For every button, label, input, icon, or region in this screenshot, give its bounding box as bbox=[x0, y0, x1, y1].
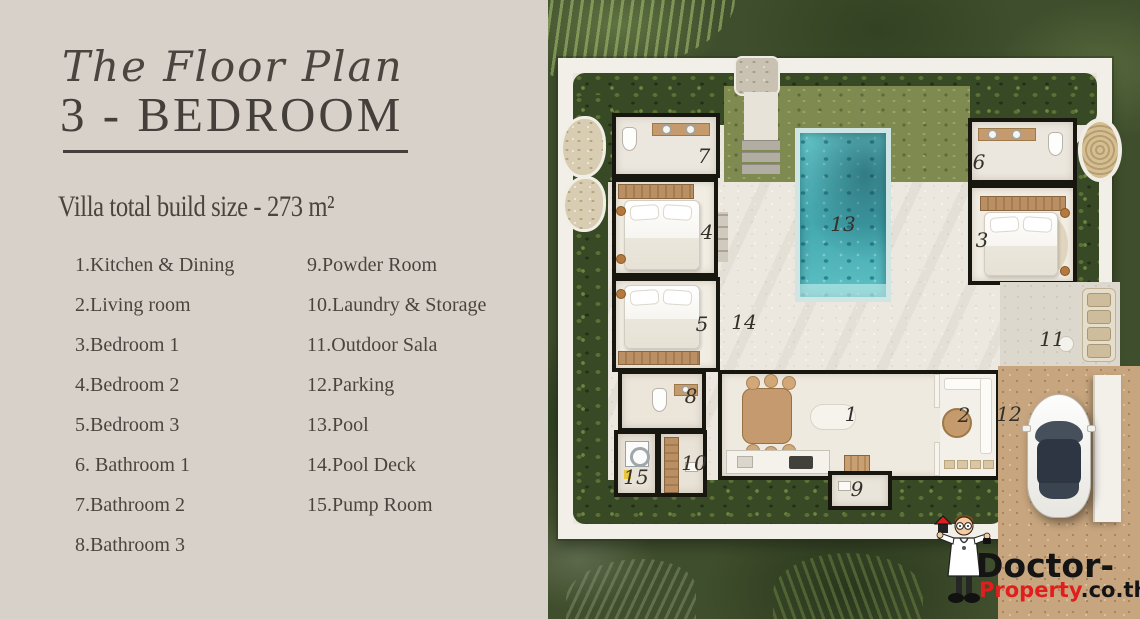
vanity bbox=[652, 123, 710, 136]
room-label-15: 15 bbox=[623, 465, 648, 489]
cushion bbox=[970, 460, 981, 469]
room-label-2: 2 bbox=[958, 403, 971, 427]
toilet bbox=[652, 388, 667, 412]
car-roof-glass bbox=[1037, 439, 1081, 487]
pampas-planter bbox=[562, 176, 606, 232]
watermark-line2: Property.co.th bbox=[979, 578, 1140, 602]
side-pot bbox=[1060, 266, 1070, 276]
page-title: 3 - BEDROOM bbox=[60, 86, 403, 143]
partition-shelf bbox=[934, 374, 940, 408]
foot-deck bbox=[618, 351, 700, 365]
legend-item-3: 3.Bedroom 1 bbox=[75, 334, 234, 354]
room-label-6: 6 bbox=[973, 150, 986, 174]
pampas-planter bbox=[560, 116, 606, 178]
bed bbox=[624, 200, 700, 270]
hanging-basket-chair bbox=[1078, 118, 1122, 182]
car bbox=[1027, 394, 1091, 518]
info-panel: The Floor Plan 3 - BEDROOM Villa total b… bbox=[0, 0, 548, 619]
room-label-1: 1 bbox=[845, 402, 858, 426]
storage-counter bbox=[664, 437, 679, 493]
gate-wall bbox=[1093, 375, 1121, 522]
cushion bbox=[957, 460, 968, 469]
room-label-13: 13 bbox=[830, 212, 855, 236]
bed bbox=[624, 285, 700, 349]
watermark: Doctor- Property.co.th bbox=[934, 514, 1140, 619]
legend-item-9: 9.Powder Room bbox=[307, 254, 486, 274]
cooktop bbox=[789, 456, 813, 469]
legend-item-6: 6. Bathroom 1 bbox=[75, 454, 234, 474]
side-pot bbox=[616, 254, 626, 264]
legend-item-11: 11.Outdoor Sala bbox=[307, 334, 486, 354]
room-label-12: 12 bbox=[996, 402, 1021, 426]
door-mat bbox=[844, 455, 870, 472]
room-label-10: 10 bbox=[681, 451, 706, 475]
kitchen-sink bbox=[737, 456, 753, 468]
chair bbox=[764, 374, 778, 388]
legend-item-10: 10.Laundry & Storage bbox=[307, 294, 486, 314]
build-size-subtitle: Villa total build size - 273 m² bbox=[58, 190, 334, 224]
kitchen-counter bbox=[726, 450, 830, 474]
entry-steps bbox=[742, 140, 780, 182]
sala-bench bbox=[1082, 288, 1116, 362]
powder-basin bbox=[838, 481, 851, 491]
toilet bbox=[622, 127, 637, 151]
watermark-brand: Property bbox=[979, 578, 1081, 602]
legend-item-13: 13.Pool bbox=[307, 414, 486, 434]
headboard bbox=[618, 184, 694, 199]
outdoor-sala bbox=[1000, 282, 1120, 370]
divider-line bbox=[63, 150, 408, 153]
side-pot bbox=[616, 206, 626, 216]
entry-gate-pad bbox=[734, 56, 780, 96]
legend-item-14: 14.Pool Deck bbox=[307, 454, 486, 474]
legend-item-7: 7.Bathroom 2 bbox=[75, 494, 234, 514]
partition-shelf bbox=[934, 442, 940, 476]
side-pot bbox=[616, 289, 626, 299]
dining-table bbox=[742, 388, 792, 444]
vanity bbox=[978, 128, 1036, 141]
room-label-14: 14 bbox=[731, 310, 756, 334]
floor-plan-flyer: The Floor Plan 3 - BEDROOM Villa total b… bbox=[0, 0, 1140, 619]
cushion bbox=[983, 460, 994, 469]
watermark-tld: .co.th bbox=[1081, 578, 1140, 602]
legend-column-2: 9.Powder Room 10.Laundry & Storage 11.Ou… bbox=[307, 254, 486, 534]
cushion bbox=[944, 460, 955, 469]
toilet bbox=[1048, 132, 1063, 156]
room-label-9: 9 bbox=[851, 477, 864, 501]
room-label-7: 7 bbox=[698, 144, 711, 168]
room-label-11: 11 bbox=[1039, 327, 1064, 351]
chair bbox=[782, 376, 796, 390]
legend-column-1: 1.Kitchen & Dining 2.Living room 3.Bedro… bbox=[75, 254, 234, 574]
entry-walkway bbox=[744, 92, 778, 144]
legend-item-15: 15.Pump Room bbox=[307, 494, 486, 514]
headboard bbox=[980, 196, 1066, 211]
room-label-5: 5 bbox=[696, 312, 709, 336]
room-label-4: 4 bbox=[701, 220, 714, 244]
legend-item-2: 2.Living room bbox=[75, 294, 234, 314]
sofa bbox=[980, 378, 992, 454]
room-label-3: 3 bbox=[976, 228, 989, 252]
title-script: The Floor Plan bbox=[62, 42, 404, 91]
legend-item-5: 5.Bedroom 3 bbox=[75, 414, 234, 434]
bed bbox=[984, 212, 1058, 276]
washing-machine bbox=[625, 441, 649, 467]
floor-plan-render: 1 2 3 4 5 6 7 8 9 10 11 12 13 14 15 bbox=[548, 0, 1140, 619]
room-label-8: 8 bbox=[685, 384, 698, 408]
legend-item-1: 1.Kitchen & Dining bbox=[75, 254, 234, 274]
car-rear-window bbox=[1039, 483, 1079, 499]
legend-item-4: 4.Bedroom 2 bbox=[75, 374, 234, 394]
side-pot bbox=[1060, 208, 1070, 218]
legend-item-8: 8.Bathroom 3 bbox=[75, 534, 234, 554]
chair bbox=[746, 376, 760, 390]
legend-item-12: 12.Parking bbox=[307, 374, 486, 394]
